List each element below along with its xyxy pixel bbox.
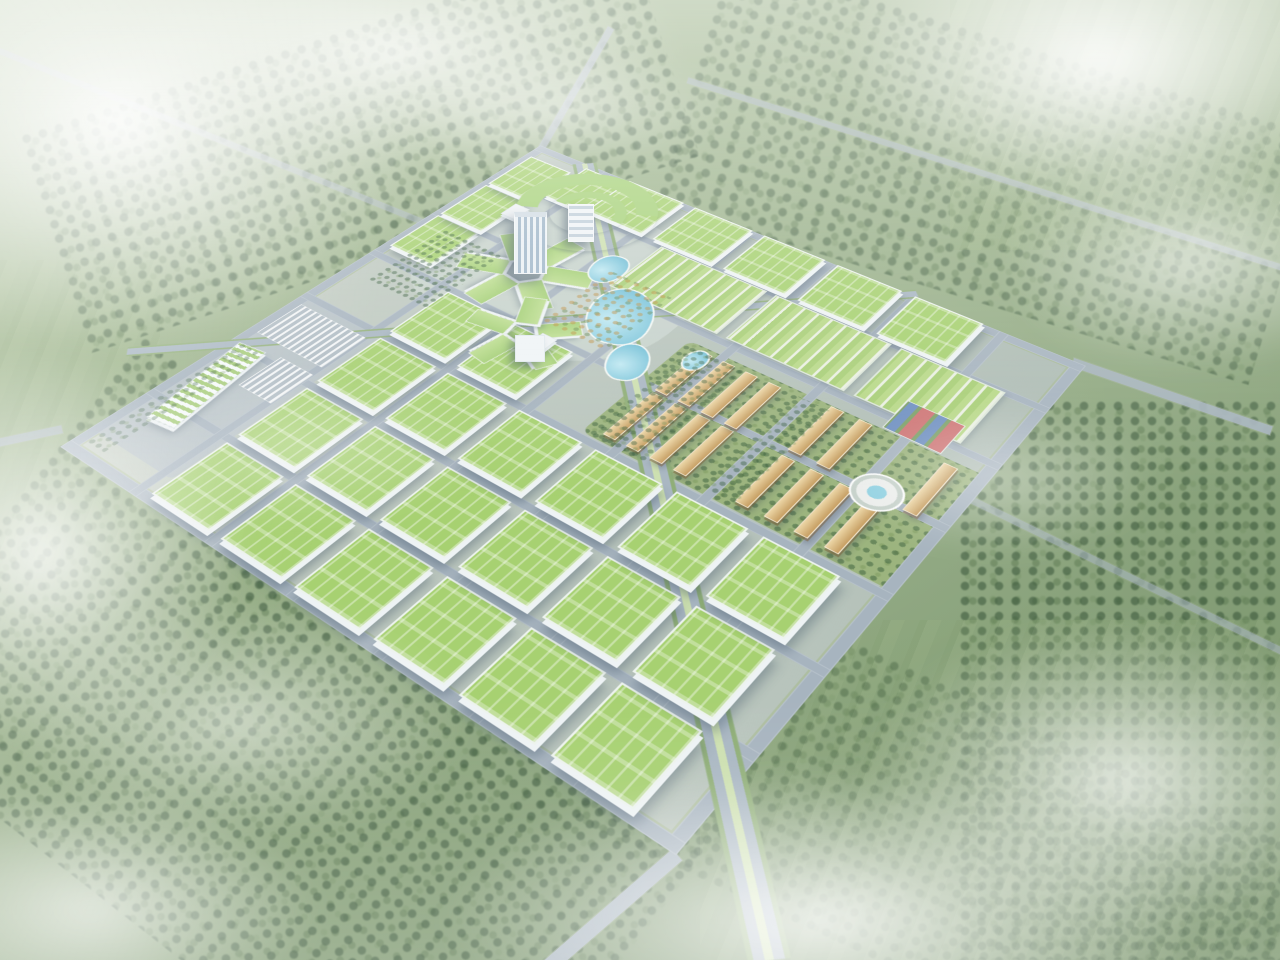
white-office-block bbox=[515, 335, 545, 362]
factory-building bbox=[876, 296, 983, 363]
cloud bbox=[110, 370, 490, 530]
cloud bbox=[390, 50, 730, 170]
aerial-industrial-park-rendering: Bird's-eye architectural rendering of a … bbox=[0, 0, 1280, 960]
midrise-office-building bbox=[568, 204, 594, 242]
office-high-rise-tower bbox=[514, 212, 547, 274]
cloud bbox=[840, 405, 1160, 555]
